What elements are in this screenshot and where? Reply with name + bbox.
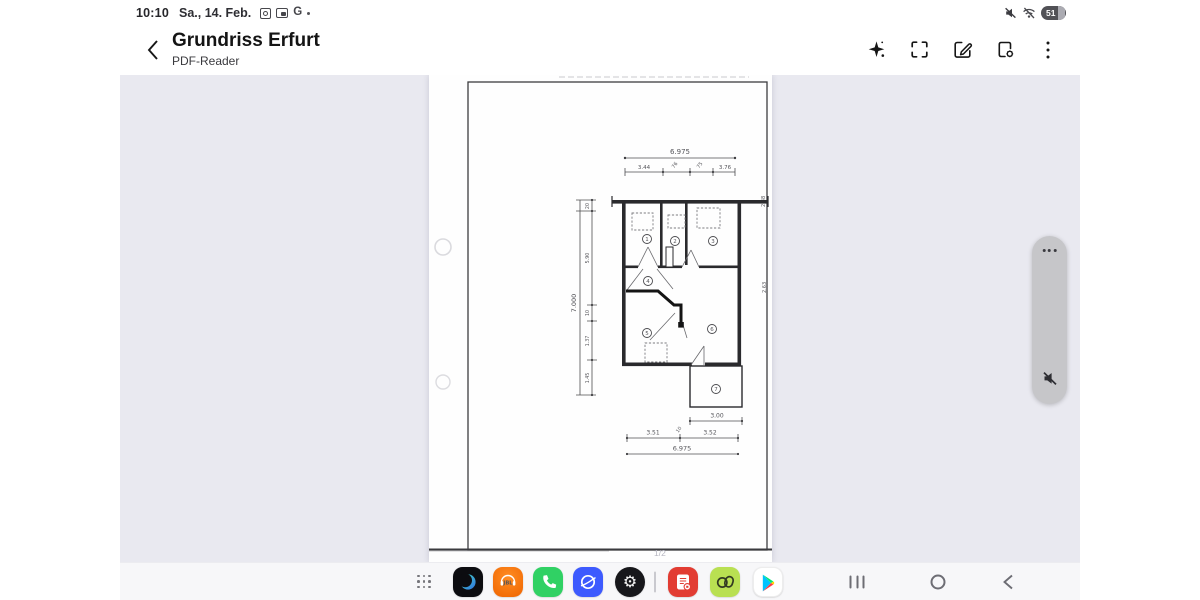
overflow-dot-icon [307, 12, 310, 15]
nav-recents-button[interactable] [846, 571, 869, 592]
status-bar: 10:10 Sa., 14. Feb. G 51 [120, 0, 1080, 24]
panel-mute-button[interactable] [1042, 371, 1058, 391]
kebab-menu-icon [1045, 40, 1051, 60]
clock: 10:10 [136, 6, 169, 20]
header-actions [864, 38, 1060, 62]
document-settings-button[interactable] [993, 38, 1017, 62]
pip-icon [276, 8, 288, 18]
svg-text:6.975: 6.975 [673, 445, 692, 453]
fullscreen-icon [909, 39, 930, 60]
app-icon-internet[interactable] [573, 567, 603, 597]
panel-more-icon[interactable] [1042, 249, 1057, 252]
app-icon-play-store[interactable] [753, 567, 783, 597]
volume-muted-icon [1042, 371, 1058, 386]
page-indicator: 1/2 [654, 548, 666, 558]
svg-text:3.76: 3.76 [719, 165, 732, 171]
svg-text:3.44: 3.44 [638, 165, 651, 171]
app-drawer-button[interactable] [417, 575, 431, 589]
play-store-icon [758, 572, 778, 592]
ai-assist-button[interactable] [864, 38, 888, 62]
screen-capture-icon [260, 8, 271, 19]
svg-text:7.000: 7.000 [570, 294, 578, 313]
app-icon-phone[interactable] [533, 567, 563, 597]
battery-icon: 51 [1041, 6, 1066, 20]
svg-text:10: 10 [585, 310, 591, 316]
svg-text:3.52: 3.52 [703, 430, 717, 437]
svg-text:6: 6 [710, 327, 714, 333]
google-g-icon: G [293, 7, 302, 19]
taskbar: JBL ⚙ [120, 562, 1080, 600]
crescent-swirl-icon [458, 572, 478, 592]
document-titles: Grundriss Erfurt PDF-Reader [172, 31, 320, 68]
svg-text:5: 5 [645, 331, 649, 337]
svg-text:10: 10 [675, 426, 683, 434]
document-gear-icon [995, 39, 1016, 60]
sparkle-icon [866, 39, 887, 60]
svg-text:3.51: 3.51 [646, 430, 660, 437]
planet-browser-icon [578, 572, 598, 592]
loops-icon [715, 572, 735, 592]
svg-text:20: 20 [585, 203, 591, 209]
document-badge-icon [673, 572, 693, 592]
taskbar-divider [654, 571, 656, 592]
svg-text:1.37: 1.37 [585, 336, 591, 347]
page-title: Grundriss Erfurt [172, 31, 320, 52]
svg-text:5.90: 5.90 [585, 253, 591, 264]
battery-percent: 51 [1041, 6, 1058, 20]
nav-back-button[interactable] [999, 571, 1017, 593]
svg-text:6.975: 6.975 [670, 148, 690, 156]
gear-icon: ⚙ [623, 574, 637, 590]
svg-text:3.00: 3.00 [710, 413, 724, 420]
svg-text:2.63: 2.63 [762, 282, 768, 293]
edit-pencil-icon [952, 39, 973, 60]
svg-text:76: 76 [671, 161, 680, 170]
app-name-subtitle: PDF-Reader [172, 55, 320, 68]
svg-text:1.45: 1.45 [585, 373, 591, 384]
edit-button[interactable] [950, 38, 974, 62]
volume-panel[interactable] [1032, 236, 1067, 404]
pdf-viewer[interactable]: 6.975 3.44 76 75 3.76 7.000 20 5.90 10 [120, 75, 1080, 562]
svg-text:JBL: JBL [502, 580, 513, 586]
fullscreen-button[interactable] [907, 38, 931, 62]
pdf-page[interactable]: 6.975 3.44 76 75 3.76 7.000 20 5.90 10 [429, 75, 772, 562]
device-screen: 10:10 Sa., 14. Feb. G 51 [120, 0, 1080, 600]
svg-text:7: 7 [714, 387, 718, 393]
svg-text:1: 1 [645, 237, 649, 243]
volume-muted-icon [1004, 7, 1017, 19]
jbl-headphones-icon: JBL [497, 571, 519, 593]
chevron-left-icon [146, 39, 160, 61]
app-header: Grundriss Erfurt PDF-Reader [120, 24, 1080, 75]
status-left-icons: G [260, 7, 310, 19]
chevron-left-icon [1002, 574, 1014, 590]
status-right-icons: 51 [1004, 6, 1066, 20]
floorplan-drawing: 6.975 3.44 76 75 3.76 7.000 20 5.90 10 [429, 75, 772, 562]
svg-text:75: 75 [696, 161, 705, 170]
date: Sa., 14. Feb. [179, 6, 251, 20]
app-icon-settings[interactable]: ⚙ [615, 567, 645, 597]
nav-home-button[interactable] [931, 574, 946, 589]
wifi-off-icon [1022, 7, 1036, 19]
svg-text:3: 3 [711, 239, 715, 245]
app-icon-notes[interactable] [710, 567, 740, 597]
svg-text:4: 4 [646, 279, 650, 285]
svg-text:2: 2 [673, 239, 677, 245]
app-icon-pdf-reader[interactable] [668, 567, 698, 597]
app-icon-jbl[interactable]: JBL [493, 567, 523, 597]
back-button[interactable] [140, 34, 166, 66]
more-menu-button[interactable] [1036, 38, 1060, 62]
app-icon-modes[interactable] [453, 567, 483, 597]
phone-icon [539, 573, 557, 591]
